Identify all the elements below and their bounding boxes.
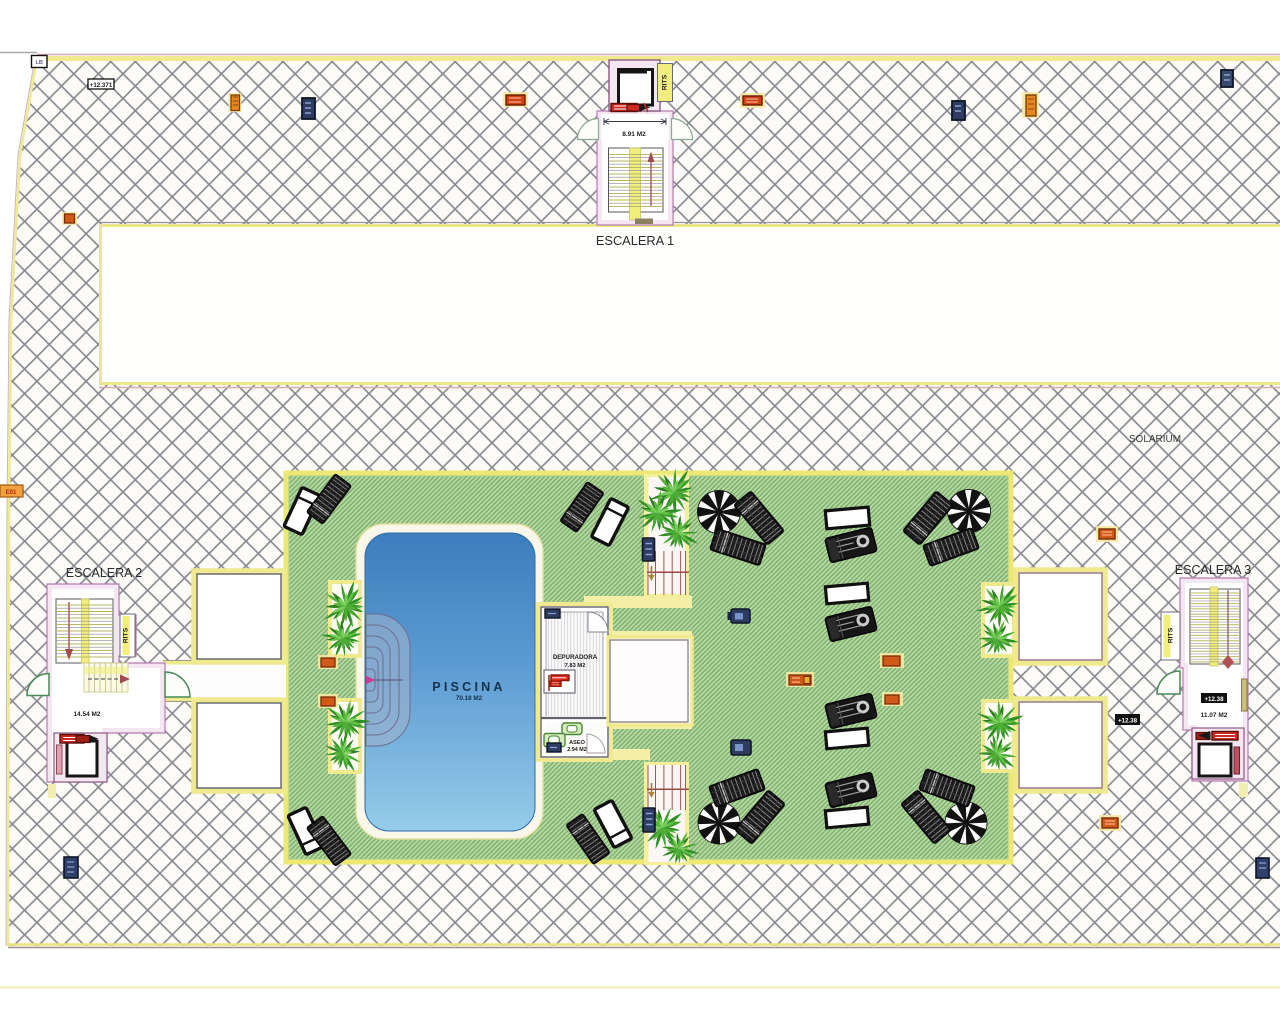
svg-text:SOLARIUM: SOLARIUM xyxy=(1129,434,1181,445)
svg-text:PISCINA: PISCINA xyxy=(432,680,505,694)
svg-text:+12.38: +12.38 xyxy=(1204,696,1224,703)
svg-text:ESCALERA 1: ESCALERA 1 xyxy=(596,233,674,248)
svg-text:RITS: RITS xyxy=(662,74,669,90)
svg-text:2.94 M2: 2.94 M2 xyxy=(567,747,586,753)
svg-text:+12.371: +12.371 xyxy=(90,82,113,89)
svg-text:+12.38: +12.38 xyxy=(1118,718,1138,725)
svg-text:11.07 M2: 11.07 M2 xyxy=(1201,712,1228,719)
svg-text:ASEO: ASEO xyxy=(569,740,586,746)
svg-text:LB: LB xyxy=(35,60,42,66)
svg-text:DEPURADORA: DEPURADORA xyxy=(553,654,598,661)
svg-text:7.83 M2: 7.83 M2 xyxy=(565,663,586,669)
svg-text:ESCALERA 3: ESCALERA 3 xyxy=(1175,563,1251,577)
svg-text:ESCALERA 2: ESCALERA 2 xyxy=(66,566,142,580)
svg-text:RITS: RITS xyxy=(123,627,130,643)
svg-text:8.91 M2: 8.91 M2 xyxy=(622,131,646,138)
svg-text:14.54 M2: 14.54 M2 xyxy=(73,711,100,718)
svg-text:RITS: RITS xyxy=(1168,627,1175,643)
svg-text:70.18 M2: 70.18 M2 xyxy=(456,695,483,702)
svg-text:E01: E01 xyxy=(6,490,17,496)
